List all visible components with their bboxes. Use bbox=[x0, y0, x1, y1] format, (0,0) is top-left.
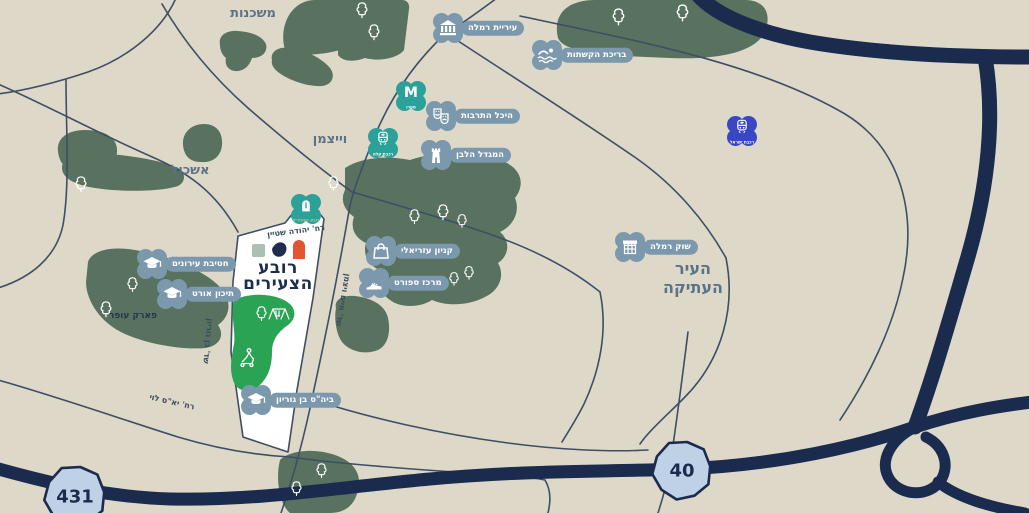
white-tower-marker[interactable]: המגדל הלבן bbox=[419, 138, 453, 172]
street-label-haim-weizmann: שד' חיים ויצמן bbox=[334, 273, 352, 327]
labels-overlay: רובע הצעירים עיריית רמלהבריכת הקשתותMמטר… bbox=[0, 0, 1029, 513]
ramla-young-quarter-map: 43140 רובע הצעירים עיריית רמלהבריכת הקשת… bbox=[0, 0, 1029, 513]
street-label-yas-levi: רח' יא"ס לוי bbox=[149, 392, 196, 411]
city-hall-marker[interactable]: עיריית רמלה bbox=[431, 11, 465, 45]
azrieli-mall-marker[interactable]: קניון עזריאלי bbox=[364, 234, 398, 268]
urban-middle-school-marker[interactable]: חטיבת עירונים bbox=[135, 247, 169, 281]
marker-label: ביה"ס בן גוריון bbox=[269, 393, 341, 408]
metro-icon: Mמטרו bbox=[394, 79, 428, 113]
light-rail-stop-marker[interactable]: רכבת קלה bbox=[366, 126, 400, 160]
svg-text:M: M bbox=[404, 85, 418, 101]
region-label-old-city: העיר העתיקה bbox=[663, 259, 723, 297]
marker-label: היכל התרבות bbox=[454, 109, 520, 124]
ben-gurion-school-marker[interactable]: ביה"ס בן גוריון bbox=[239, 383, 273, 417]
street-label-ben-gurion-blvd: שד' בן גוריון bbox=[202, 318, 215, 364]
logo-shapes bbox=[233, 238, 323, 259]
svg-text:רובע הצעירים: רובע הצעירים bbox=[292, 218, 320, 223]
svg-text:רכבת קלה: רכבת קלה bbox=[373, 152, 394, 157]
logo-arch-icon bbox=[293, 240, 305, 259]
young-quarter-logo: רובע הצעירים bbox=[233, 238, 323, 292]
train-icon: רכבת קלה bbox=[366, 126, 400, 160]
marker-label: קניון עזריאלי bbox=[394, 244, 460, 259]
sports-center-marker[interactable]: מרכז ספורט bbox=[357, 266, 391, 300]
marker-label: שוק רמלה bbox=[643, 240, 698, 255]
marker-label: תיכון אורט bbox=[185, 287, 241, 302]
arch-icon: רובע הצעירים bbox=[289, 192, 323, 226]
young-quarter-mark-marker[interactable]: רובע הצעירים bbox=[289, 192, 323, 226]
region-label-ofer-park: פארק עופר bbox=[109, 311, 157, 321]
logo-title: רובע הצעירים bbox=[233, 261, 323, 292]
metro-station-marker[interactable]: Mמטרו bbox=[394, 79, 428, 113]
svg-text:רכבת ישראל: רכבת ישראל bbox=[730, 140, 755, 145]
marker-label: מרכז ספורט bbox=[387, 276, 449, 291]
ort-high-school-marker[interactable]: תיכון אורט bbox=[155, 277, 189, 311]
marker-label: המגדל הלבן bbox=[449, 148, 511, 163]
ramla-market-marker[interactable]: שוק רמלה bbox=[613, 230, 647, 264]
marker-label: עיריית רמלה bbox=[461, 21, 524, 36]
train-icon: רכבת ישראל bbox=[725, 114, 759, 148]
region-label-mishkenot: משכנות bbox=[230, 6, 276, 22]
arches-pool-marker[interactable]: בריכת הקשתות bbox=[530, 38, 564, 72]
logo-title-line2: הצעירים bbox=[233, 277, 323, 293]
marker-label: חטיבת עירונים bbox=[165, 257, 236, 272]
logo-square-icon bbox=[252, 244, 265, 257]
culture-hall-marker[interactable]: היכל התרבות bbox=[424, 99, 458, 133]
svg-text:מטרו: מטרו bbox=[406, 105, 416, 110]
street-label-yehuda-stein: רח' יהודה שטיין bbox=[267, 223, 326, 239]
israel-railways-marker[interactable]: רכבת ישראל bbox=[725, 114, 759, 148]
marker-label: בריכת הקשתות bbox=[560, 48, 633, 63]
region-label-eshkol: אשכול bbox=[170, 163, 209, 179]
logo-pebble-icon bbox=[270, 240, 288, 259]
region-label-weizmann: וייצמן bbox=[313, 132, 347, 148]
